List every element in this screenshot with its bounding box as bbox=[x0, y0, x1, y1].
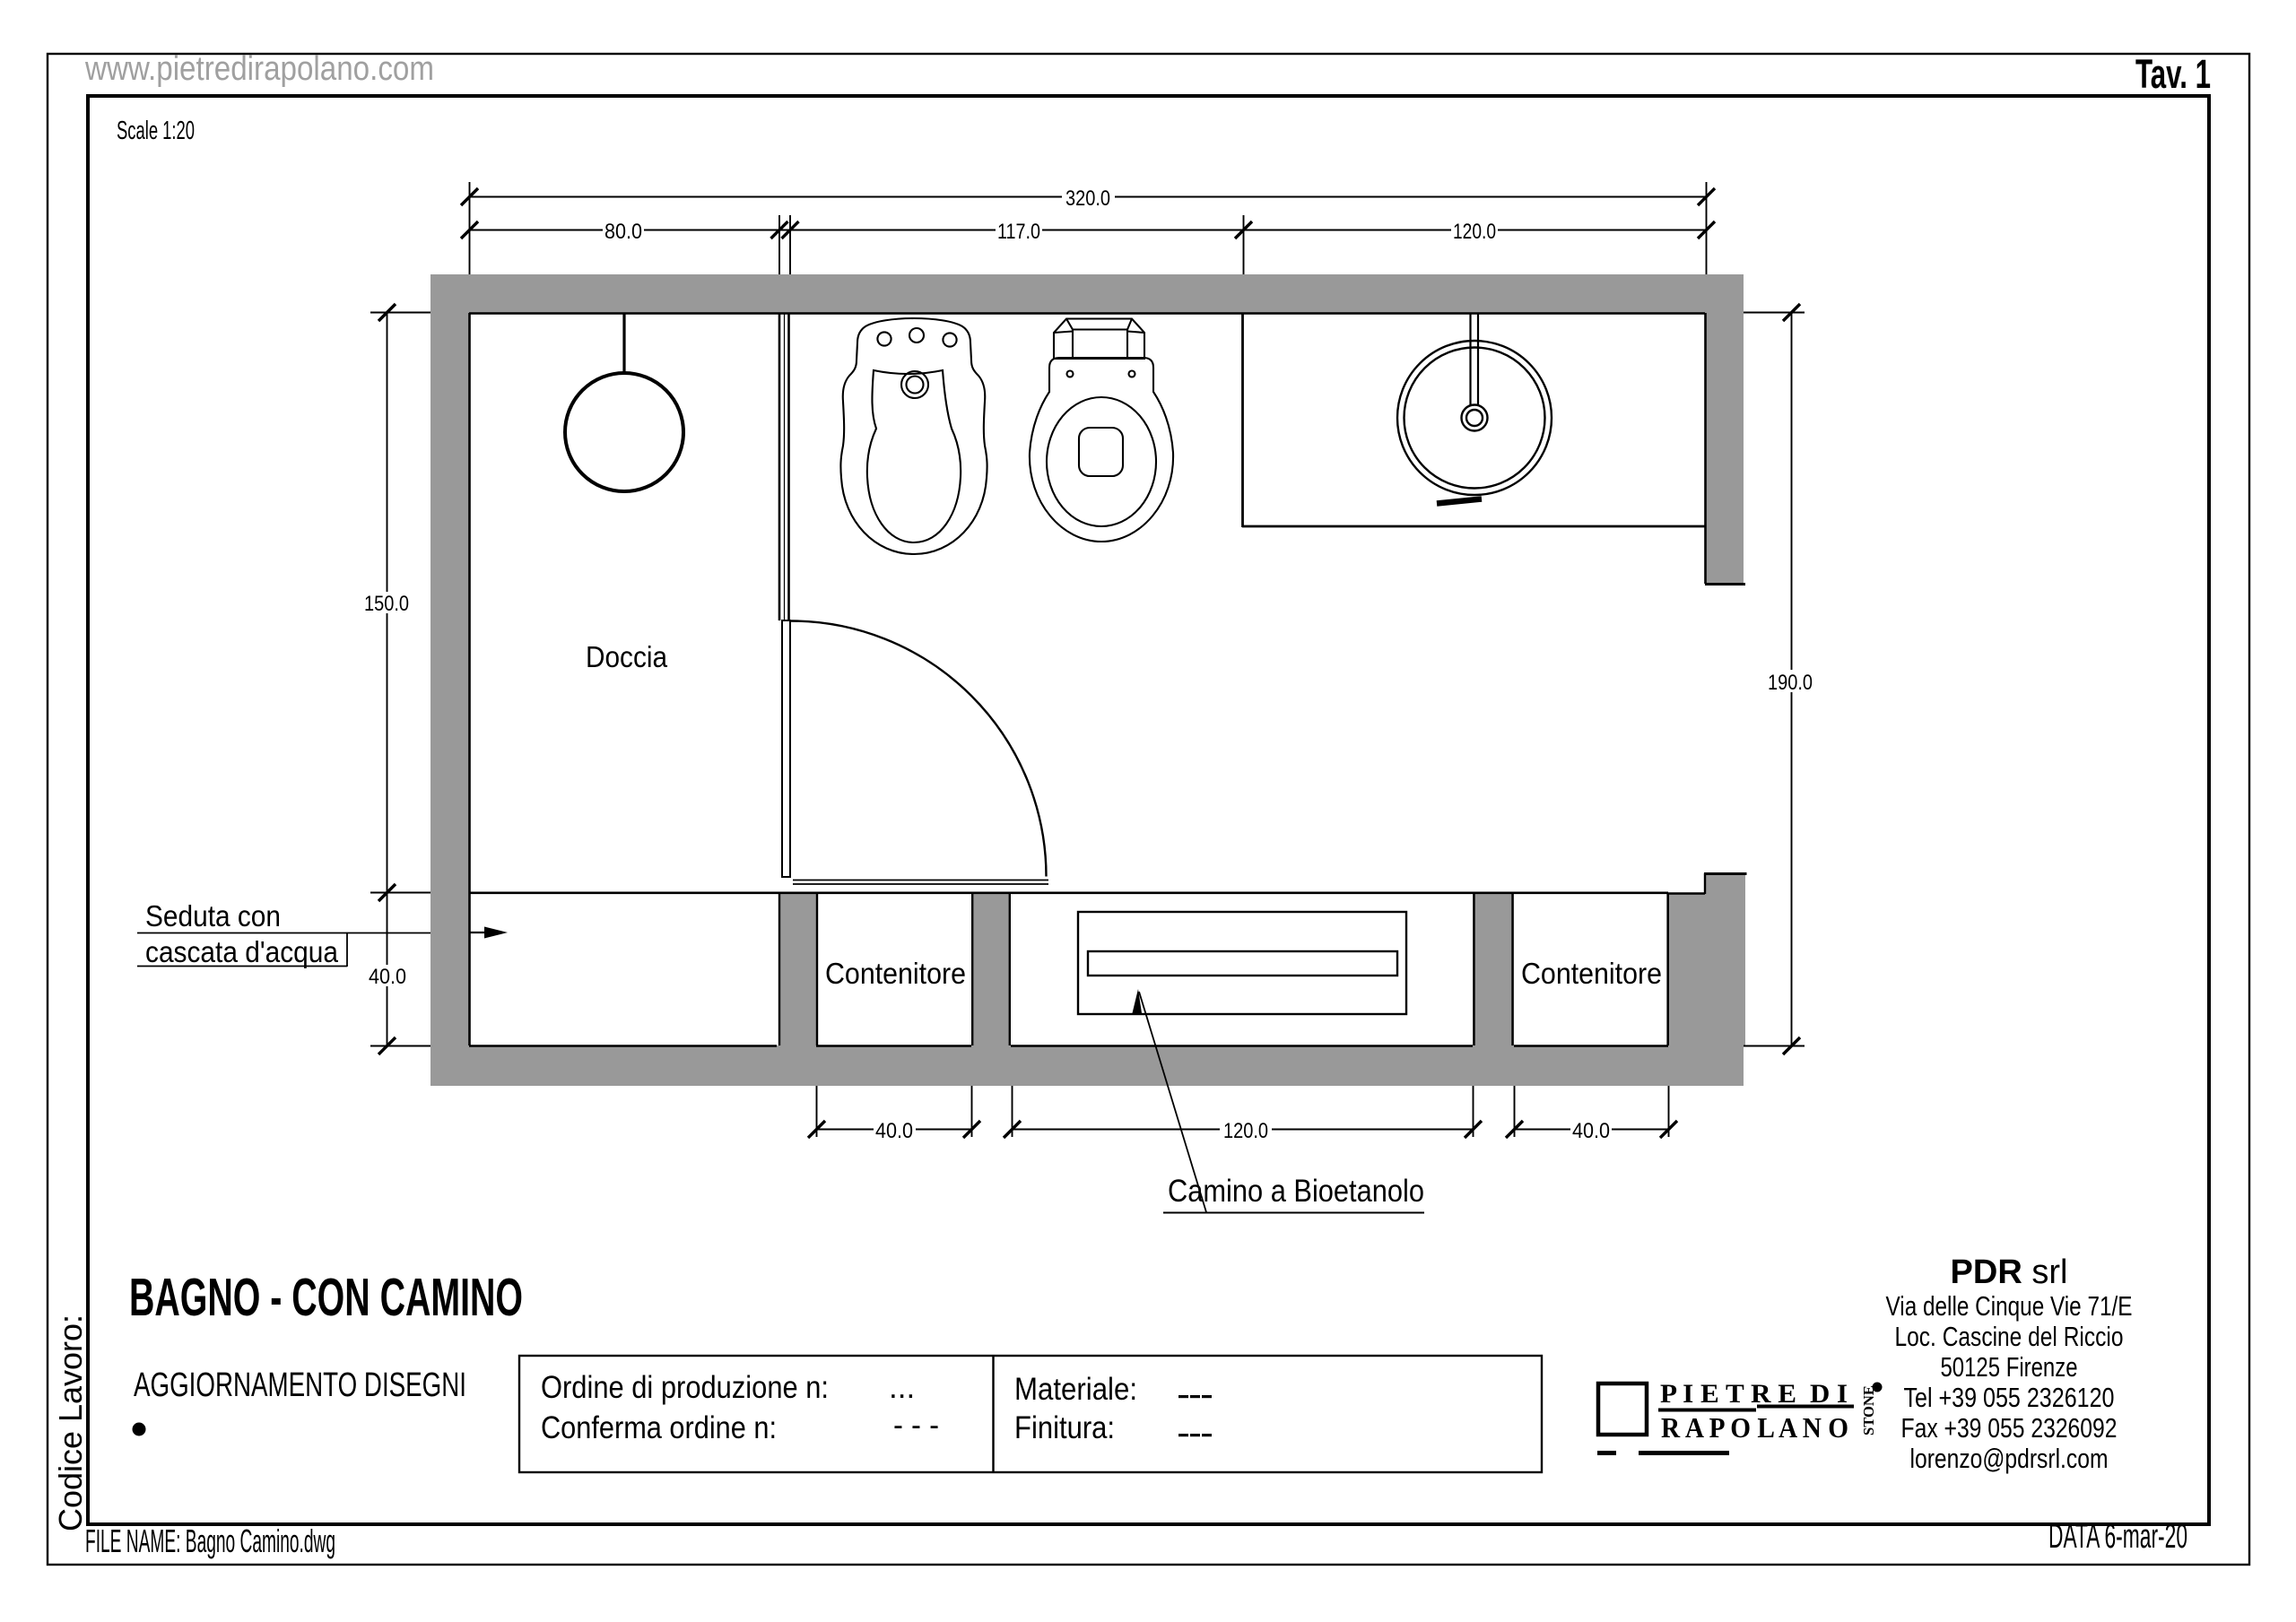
svg-text:Via delle Cinque Vie 71/E: Via delle Cinque Vie 71/E bbox=[1886, 1290, 2133, 1322]
svg-text:Loc. Cascine del Riccio: Loc. Cascine del Riccio bbox=[1895, 1321, 2124, 1352]
svg-text:Tel +39 055 2326120: Tel +39 055 2326120 bbox=[1904, 1382, 2115, 1413]
svg-text:Scale 1:20: Scale 1:20 bbox=[117, 117, 195, 145]
svg-text:cascata d'acqua: cascata d'acqua bbox=[145, 935, 339, 968]
svg-text:40.0: 40.0 bbox=[875, 1119, 913, 1143]
svg-text:AGGIORNAMENTO DISEGNI: AGGIORNAMENTO DISEGNI bbox=[134, 1366, 466, 1404]
svg-text:Conferma ordine n:: Conferma ordine n: bbox=[541, 1410, 777, 1445]
svg-text:190.0: 190.0 bbox=[1768, 671, 1813, 695]
svg-text:120.0: 120.0 bbox=[1453, 220, 1496, 244]
svg-text:Finitura:: Finitura: bbox=[1014, 1410, 1115, 1445]
svg-text:Contenitore: Contenitore bbox=[1521, 957, 1662, 990]
svg-text:Doccia: Doccia bbox=[586, 640, 668, 673]
svg-text:Contenitore: Contenitore bbox=[825, 957, 966, 990]
svg-text:40.0: 40.0 bbox=[369, 965, 406, 989]
svg-text:DATA 6-mar-20: DATA 6-mar-20 bbox=[2048, 1518, 2187, 1556]
svg-text:Materiale:: Materiale: bbox=[1014, 1372, 1137, 1407]
svg-text:BAGNO - CON CAMINO: BAGNO - CON CAMINO bbox=[129, 1268, 523, 1327]
svg-text:320.0: 320.0 bbox=[1065, 186, 1110, 211]
svg-text:Camino a Bioetanolo: Camino a Bioetanolo bbox=[1168, 1174, 1424, 1209]
svg-text:lorenzo@pdrsrl.com: lorenzo@pdrsrl.com bbox=[1910, 1443, 2109, 1474]
svg-text:R A P O L A N O: R A P O L A N O bbox=[1661, 1411, 1848, 1444]
svg-text:D I: D I bbox=[1810, 1379, 1848, 1409]
svg-text:117.0: 117.0 bbox=[997, 220, 1040, 244]
svg-text:Fax +39 055 2326092: Fax +39 055 2326092 bbox=[1901, 1412, 2118, 1444]
svg-text:PDR srl: PDR srl bbox=[1951, 1253, 2068, 1291]
svg-text:P I E T R E: P I E T R E bbox=[1660, 1379, 1796, 1409]
svg-text:120.0: 120.0 bbox=[1223, 1119, 1268, 1143]
svg-text:www.pietredirapolano.com: www.pietredirapolano.com bbox=[84, 50, 434, 88]
svg-text:40.0: 40.0 bbox=[1572, 1119, 1610, 1143]
svg-text:Tav. 1: Tav. 1 bbox=[2135, 51, 2211, 97]
svg-text:Codice Lavoro:: Codice Lavoro: bbox=[52, 1314, 89, 1531]
svg-text:50125 Firenze: 50125 Firenze bbox=[1941, 1351, 2078, 1383]
svg-text:- - -: - - - bbox=[893, 1408, 939, 1443]
svg-text:FILE NAME: Bagno Camino.dwg: FILE NAME: Bagno Camino.dwg bbox=[85, 1522, 335, 1559]
svg-text:Seduta con: Seduta con bbox=[145, 899, 281, 932]
svg-text:STONE: STONE bbox=[1860, 1385, 1877, 1436]
svg-text:150.0: 150.0 bbox=[364, 592, 409, 616]
svg-text:Ordine di produzione n:: Ordine di produzione n: bbox=[541, 1370, 829, 1405]
svg-text:...: ... bbox=[889, 1370, 915, 1405]
svg-text:80.0: 80.0 bbox=[604, 220, 642, 244]
